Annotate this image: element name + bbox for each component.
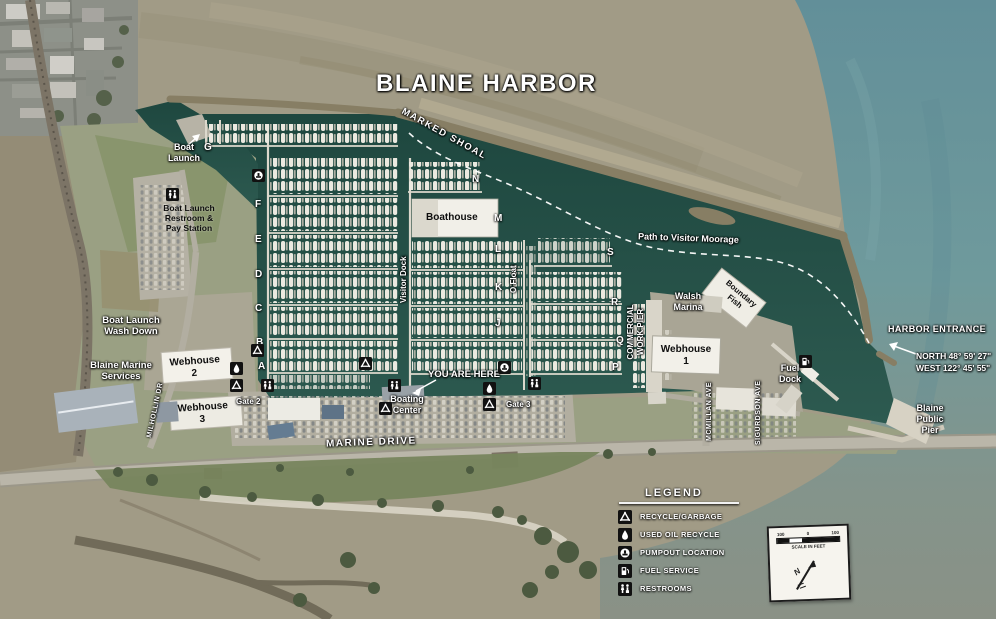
scale-tick: 0 bbox=[807, 531, 810, 536]
legend-title: LEGEND bbox=[645, 487, 758, 499]
legend-item-label: FUEL SERVICE bbox=[640, 566, 699, 575]
legend-item-label: RECYCLE/GARBAGE bbox=[640, 512, 722, 521]
harbor-map: BLAINE HARBOR MARKED SHOAL Path to Visit… bbox=[0, 0, 996, 619]
legend-item-label: USED OIL RECYCLE bbox=[640, 530, 720, 539]
recycle-icon bbox=[618, 510, 632, 523]
legend-item: RECYCLE/GARBAGE bbox=[618, 510, 758, 523]
legend-item: PUMPOUT LOCATION bbox=[618, 546, 758, 559]
legend-item-label: PUMPOUT LOCATION bbox=[640, 548, 725, 557]
scale-tick: 100 bbox=[777, 532, 785, 537]
fuel-icon bbox=[618, 564, 632, 577]
legend-rule bbox=[619, 502, 739, 504]
legend-item: FUEL SERVICE bbox=[618, 564, 758, 577]
scale-north-box: 1000100 SCALE IN FEET N bbox=[767, 524, 852, 603]
north-arrow-icon bbox=[784, 550, 830, 596]
legend-item-label: RESTROOMS bbox=[640, 584, 692, 593]
urban-area bbox=[0, 0, 138, 136]
restroom-icon bbox=[618, 582, 632, 595]
scale-tick: 100 bbox=[831, 530, 839, 535]
pumpout-icon bbox=[618, 546, 632, 559]
legend-item: RESTROOMS bbox=[618, 582, 758, 595]
legend-item: USED OIL RECYCLE bbox=[618, 528, 758, 541]
legend-items: RECYCLE/GARBAGEUSED OIL RECYCLEPUMPOUT L… bbox=[618, 510, 758, 595]
oil-icon bbox=[618, 528, 632, 541]
legend: LEGEND RECYCLE/GARBAGEUSED OIL RECYCLEPU… bbox=[618, 487, 758, 600]
